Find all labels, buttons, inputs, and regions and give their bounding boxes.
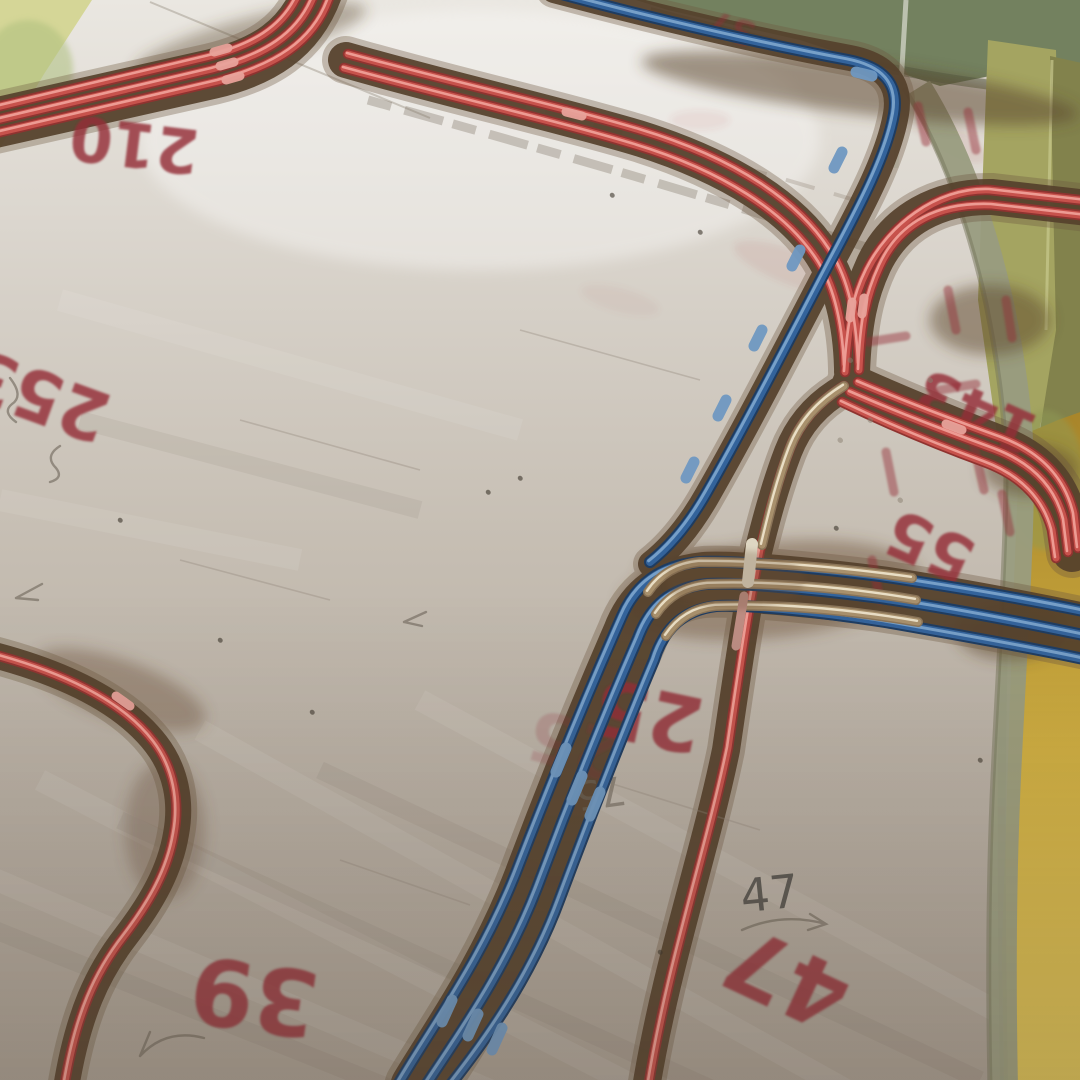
bottom-shade-overlay <box>0 0 1080 1080</box>
photo-canvas: 210 253 143 55 25 25 39 47 37 47 75 <box>0 0 1080 1080</box>
